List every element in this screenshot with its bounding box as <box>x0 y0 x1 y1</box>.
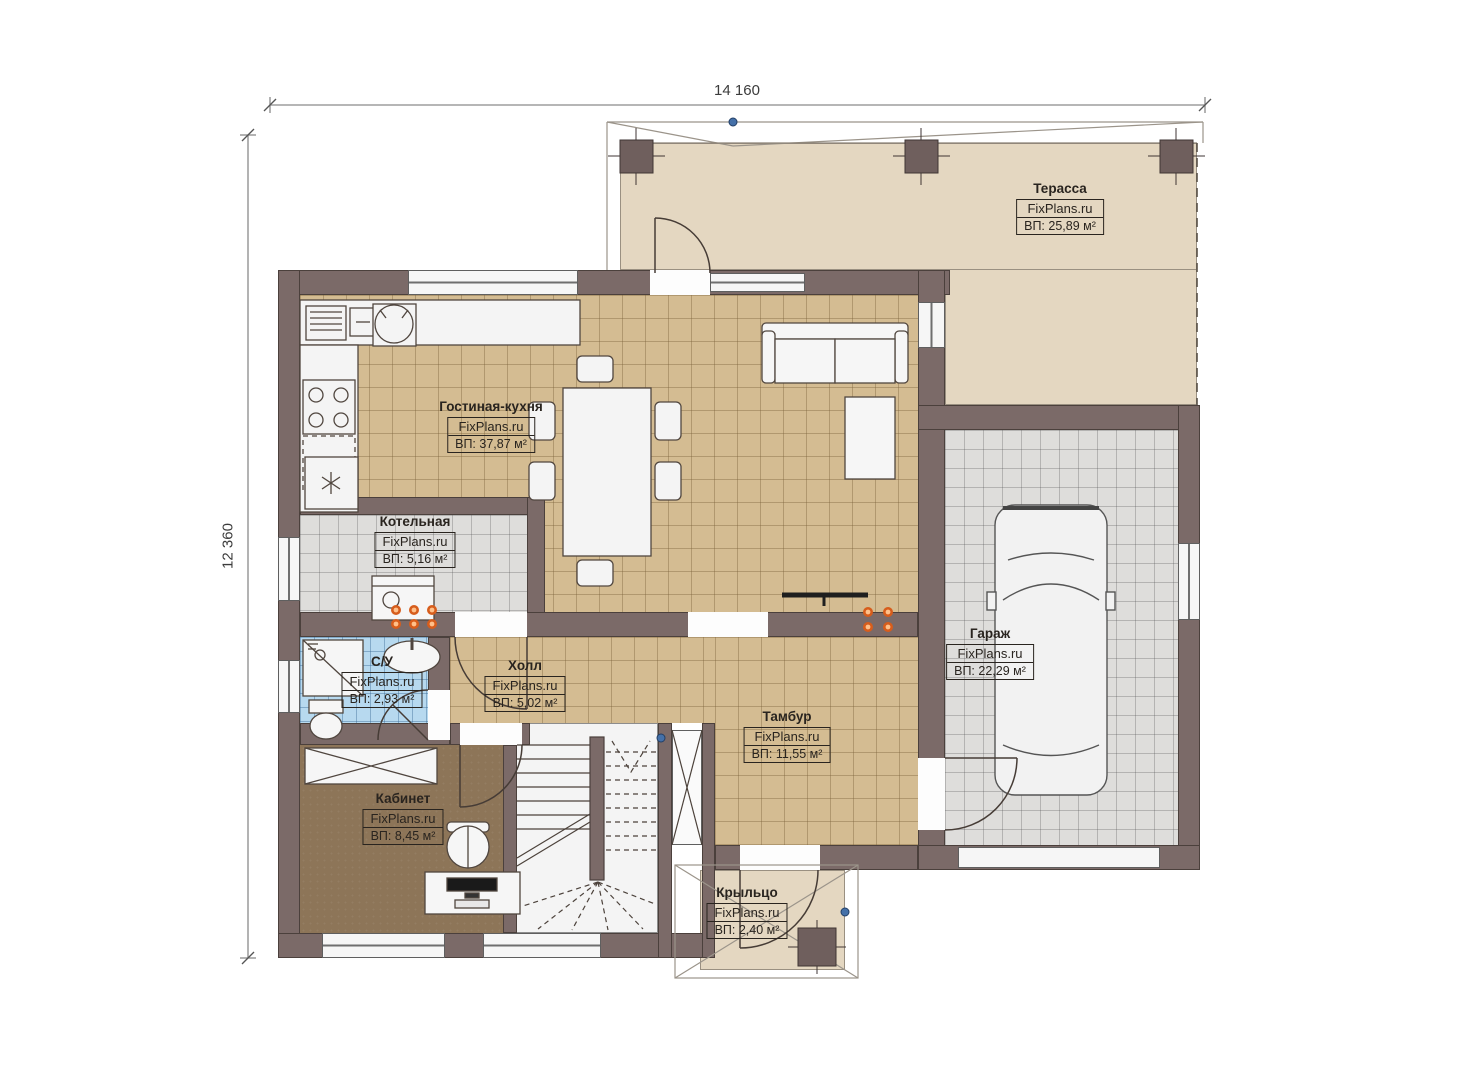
boiler-door-opening <box>455 612 527 637</box>
room-area: ВП: 2,40 м² <box>707 922 786 938</box>
brand-watermark: FixPlans.ru <box>363 810 442 828</box>
window-west-boiler <box>278 537 300 601</box>
window-west-bathroom <box>278 660 300 713</box>
stairwell-floor <box>515 723 658 933</box>
room-area: ВП: 37,87 м² <box>448 436 534 452</box>
room-name: С/У <box>341 654 422 669</box>
brand-watermark: FixPlans.ru <box>342 673 421 691</box>
wall-living-south <box>300 612 918 637</box>
duct-shaft <box>672 730 702 845</box>
room-label-vestibule: Тамбур FixPlans.ru ВП: 11,55 м² <box>744 709 831 763</box>
room-label-terrace: Терасса FixPlans.ru ВП: 25,89 м² <box>1016 181 1104 235</box>
brand-watermark: FixPlans.ru <box>485 677 564 695</box>
room-label-living-kitchen: Гостиная-кухня FixPlans.ru ВП: 37,87 м² <box>439 399 542 453</box>
room-name: Тамбур <box>744 709 831 724</box>
window-north-living <box>408 270 578 295</box>
brand-watermark: FixPlans.ru <box>745 728 830 746</box>
room-area: ВП: 11,55 м² <box>745 746 830 762</box>
dimension-height: 12 360 <box>220 523 237 569</box>
room-name: Гараж <box>946 626 1034 641</box>
living-vestibule-passage <box>688 612 768 637</box>
wall-stair-shaft-left <box>658 723 672 958</box>
room-name: Холл <box>484 658 565 673</box>
room-name: Крыльцо <box>706 885 787 900</box>
wall-office-east <box>503 745 517 933</box>
dimension-width: 14 160 <box>714 82 760 99</box>
window-garage-east <box>1178 543 1200 620</box>
brand-watermark: FixPlans.ru <box>947 645 1033 663</box>
room-area: ВП: 2,93 м² <box>342 691 421 707</box>
room-area: ВП: 5,02 м² <box>485 695 564 711</box>
terrace-door-opening <box>650 270 710 295</box>
room-area: ВП: 8,45 м² <box>363 828 442 844</box>
window-south-office-2 <box>483 933 601 958</box>
room-area: ВП: 25,89 м² <box>1017 218 1103 234</box>
bathroom-door-opening <box>428 690 450 740</box>
garage-door-opening <box>918 758 945 830</box>
office-door-opening <box>460 723 522 745</box>
room-area: ВП: 22,29 м² <box>947 663 1033 679</box>
brand-watermark: FixPlans.ru <box>1017 200 1103 218</box>
wall-boiler-north <box>300 497 545 515</box>
room-label-porch: Крыльцо FixPlans.ru ВП: 2,40 м² <box>706 885 787 939</box>
brand-watermark: FixPlans.ru <box>707 904 786 922</box>
room-label-garage: Гараж FixPlans.ru ВП: 22,29 м² <box>946 626 1034 680</box>
room-name: Терасса <box>1016 181 1104 196</box>
room-name: Котельная <box>374 514 455 529</box>
wall-west <box>278 270 300 958</box>
front-door-opening <box>740 845 820 870</box>
wall-garage-east <box>1178 405 1200 870</box>
brand-watermark: FixPlans.ru <box>448 418 534 436</box>
floor-plan-page: 14 160 12 360 Терасса FixPlans.ru ВП: 25… <box>0 0 1473 1080</box>
garage-gate <box>958 847 1160 868</box>
room-label-bathroom: С/У FixPlans.ru ВП: 2,93 м² <box>341 654 422 708</box>
terrace-floor-right <box>945 270 1197 405</box>
window-terrace-door-side <box>710 273 805 292</box>
room-label-office: Кабинет FixPlans.ru ВП: 8,45 м² <box>362 791 443 845</box>
room-label-boiler: Котельная FixPlans.ru ВП: 5,16 м² <box>374 514 455 568</box>
terrace-floor <box>620 143 1197 270</box>
window-living-terrace <box>918 302 945 348</box>
wall-north <box>278 270 950 295</box>
brand-watermark: FixPlans.ru <box>375 533 454 551</box>
room-name: Кабинет <box>362 791 443 806</box>
window-south-office-1 <box>322 933 445 958</box>
room-area: ВП: 5,16 м² <box>375 551 454 567</box>
wall-garage-north <box>918 405 1200 430</box>
room-label-hall: Холл FixPlans.ru ВП: 5,02 м² <box>484 658 565 712</box>
room-name: Гостиная-кухня <box>439 399 542 414</box>
